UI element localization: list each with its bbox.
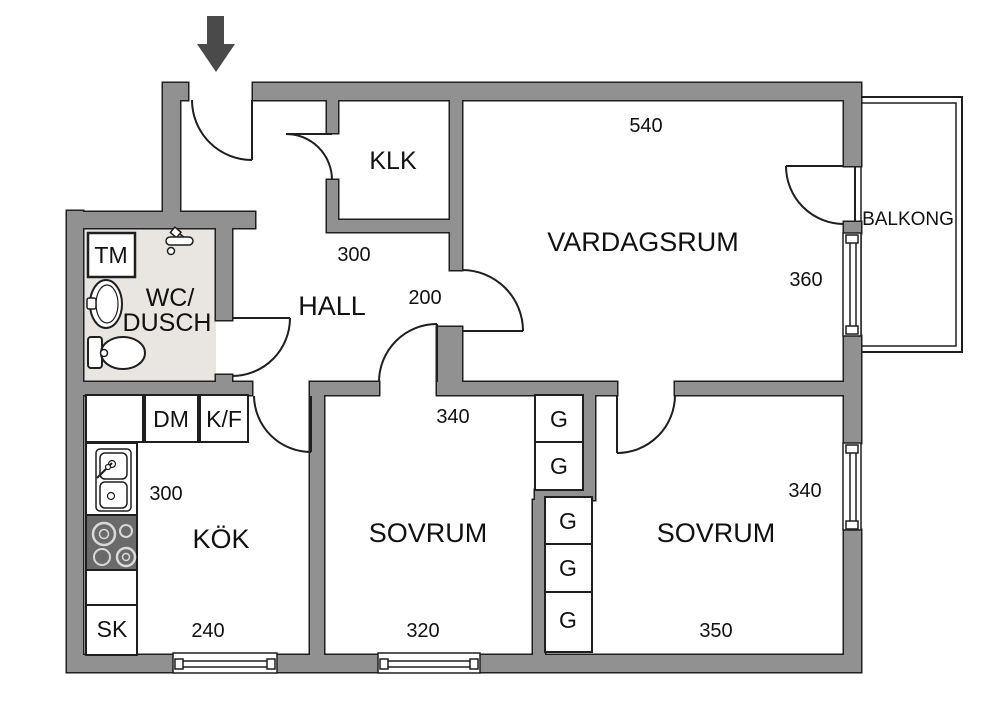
kitchen-sink-icon <box>96 449 131 511</box>
room-label-sovrum2: SOVRUM <box>657 518 776 548</box>
room-label-klk: KLK <box>369 147 417 175</box>
klk-door <box>286 134 332 180</box>
bedroom2-window <box>843 443 861 530</box>
kitchen-door <box>254 396 311 452</box>
fixture-label-sk: SK <box>97 616 128 642</box>
wardrobe-label: G <box>550 406 568 432</box>
dim-hall-opening: 200 <box>408 287 441 309</box>
dim-kok-width: 240 <box>191 620 224 642</box>
wardrobe-label: G <box>559 555 577 581</box>
room-label-wc-line1: WC/ <box>146 284 195 312</box>
wardrobe-label: G <box>550 453 568 479</box>
fixture-label-tm: TM <box>94 242 127 268</box>
fixture-label-kf: K/F <box>206 406 242 432</box>
room-label-hall: HALL <box>298 291 366 321</box>
room-label-balkong: BALKONG <box>862 209 954 230</box>
entrance-arrow-icon <box>197 16 235 72</box>
kitchen-window <box>173 653 277 673</box>
floor-plan: VARDAGSRUM 540 360 BALKONG KLK HALL 300 … <box>0 0 994 712</box>
dim-vardagsrum-width: 540 <box>629 115 662 137</box>
wardrobe-label: G <box>559 607 577 633</box>
windows <box>173 233 861 673</box>
dim-sovrum1-top: 340 <box>436 406 469 428</box>
dim-hall-width: 300 <box>337 244 370 266</box>
bedroom1-window <box>378 653 480 673</box>
dim-sovrum2-width: 350 <box>699 620 732 642</box>
dim-sovrum1-width: 320 <box>406 620 439 642</box>
room-label-sovrum1: SOVRUM <box>369 518 488 548</box>
corner-counter <box>86 395 143 442</box>
fixture-label-dm: DM <box>153 406 189 432</box>
toilet-icon <box>88 337 145 369</box>
dim-kok-height: 300 <box>149 483 182 505</box>
wardrobe-label: G <box>559 508 577 534</box>
livingroom-window <box>843 233 861 336</box>
room-label-vardagsrum: VARDAGSRUM <box>547 227 739 257</box>
room-label-kok: KÖK <box>192 524 249 554</box>
dim-vardagsrum-height: 360 <box>789 269 822 291</box>
counter-segment <box>86 570 137 605</box>
wc-door <box>232 318 290 376</box>
dim-sovrum2-height: 340 <box>788 480 821 502</box>
balcony-door <box>786 166 844 224</box>
bedroom2-door <box>617 395 675 453</box>
entrance-door <box>192 100 252 160</box>
livingroom-door <box>462 270 523 331</box>
stove-icon <box>86 515 137 570</box>
bedroom1-door <box>379 324 437 382</box>
room-label-wc-line2: DUSCH <box>123 309 212 337</box>
doors <box>192 100 844 453</box>
floor-plan-page: VARDAGSRUM 540 360 BALKONG KLK HALL 300 … <box>0 0 994 712</box>
